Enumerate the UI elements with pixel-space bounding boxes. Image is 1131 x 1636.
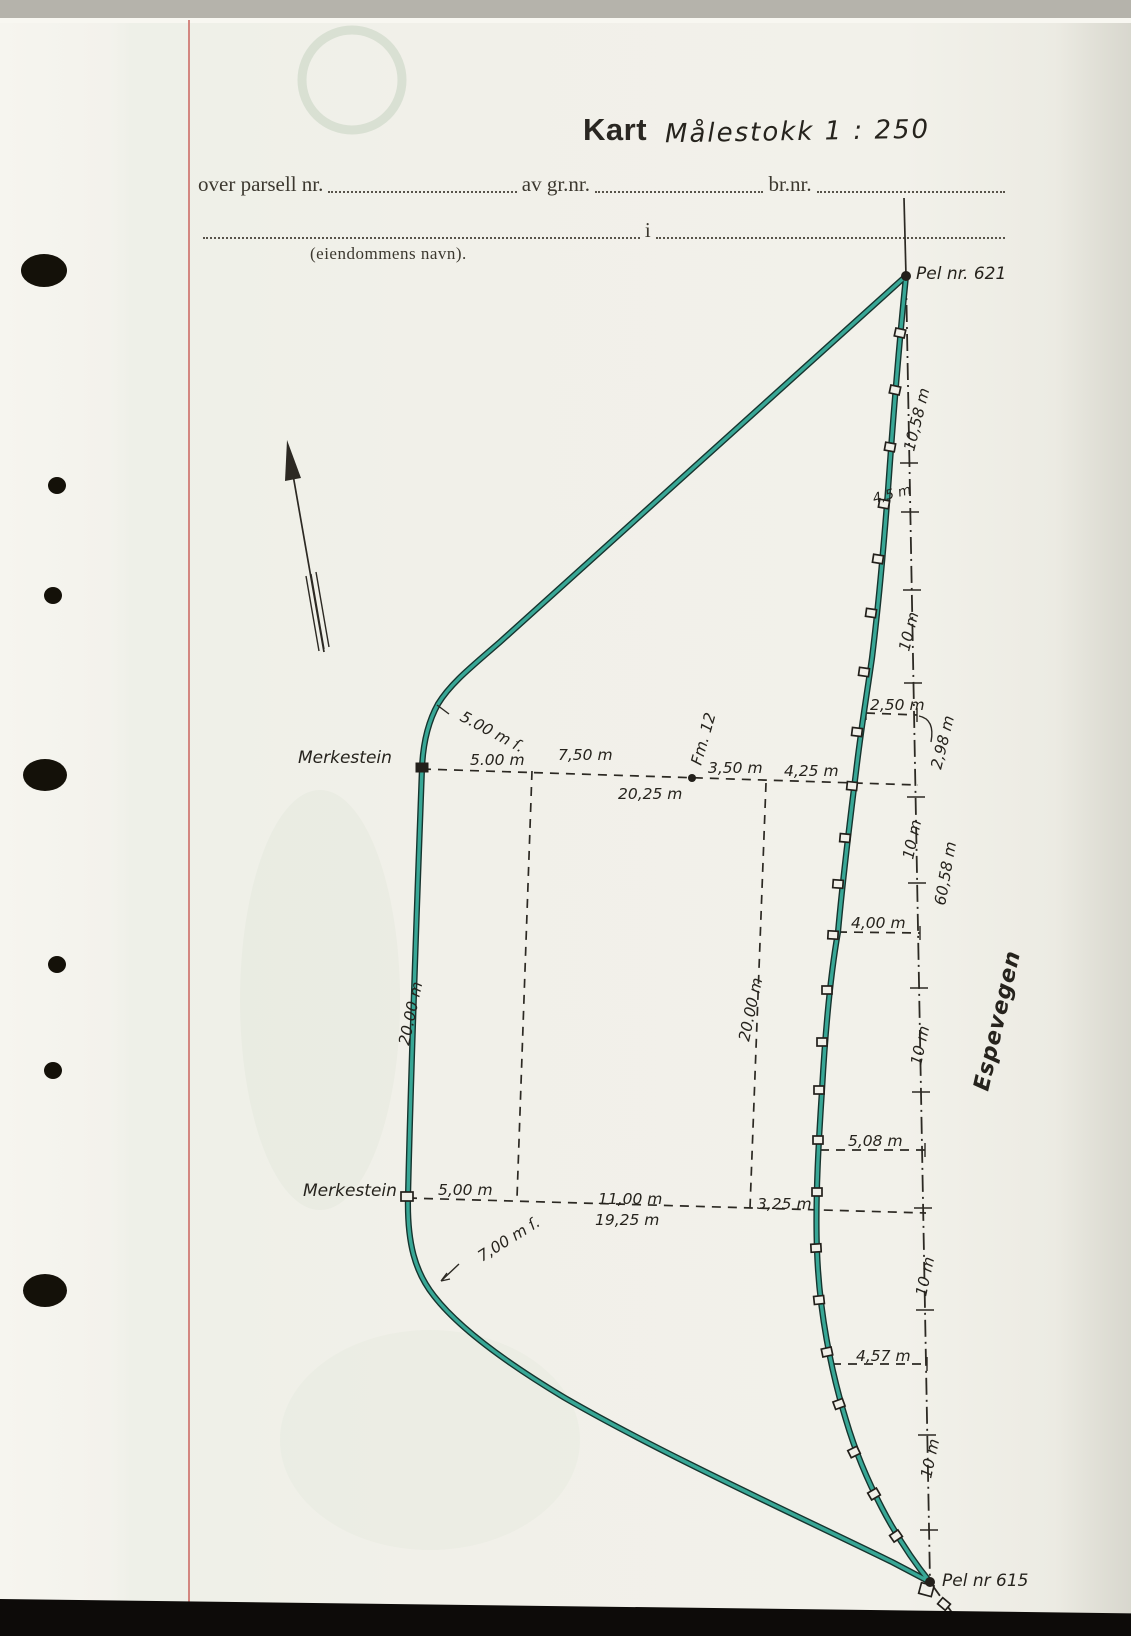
north-arrow bbox=[285, 440, 329, 652]
offset-298-leader bbox=[919, 716, 932, 742]
inner-boundary-left bbox=[517, 771, 532, 1198]
label-offset-508: 5,08 m bbox=[848, 1132, 903, 1150]
north-arrow-hatch bbox=[306, 572, 329, 651]
offset-lines bbox=[820, 713, 927, 1364]
label-depth-mid: 20.00 m bbox=[735, 976, 766, 1043]
label-road-total: 60,58 m bbox=[931, 840, 960, 907]
label-top-seg4: 4,25 m bbox=[784, 762, 839, 780]
lower-merkestein-line bbox=[408, 1198, 926, 1213]
label-bottom-seg1: 5,00 m bbox=[438, 1181, 493, 1199]
north-arrow-head bbox=[285, 440, 301, 481]
label-pel-621: Pel nr. 621 bbox=[916, 264, 1006, 284]
offset-end-ticks bbox=[820, 706, 927, 1371]
label-bottom-seg2: 11,00 m bbox=[598, 1190, 662, 1208]
ghost-ring bbox=[302, 30, 402, 130]
label-bottom-total: 19,25 m bbox=[595, 1211, 659, 1229]
label-depth-left: 20.00 m bbox=[395, 980, 426, 1047]
merkestein-mark-bottom bbox=[401, 1192, 413, 1201]
label-top-total: 20,25 m bbox=[618, 785, 682, 803]
curve-tick bbox=[437, 705, 449, 714]
label-top-seg2: 7,50 m bbox=[558, 746, 613, 764]
label-offset-457: 4,57 m bbox=[856, 1347, 911, 1365]
merkestein-mark-top bbox=[416, 763, 428, 772]
ghost-smear bbox=[240, 790, 400, 1210]
label-road-seg1: 10,58 m bbox=[900, 386, 933, 453]
label-road-seg6: 10 m bbox=[912, 1255, 938, 1298]
label-road-seg3: 10 m bbox=[895, 610, 922, 653]
label-merkestein-top: Merkestein bbox=[298, 748, 392, 768]
label-road-seg2: 4,5 m bbox=[871, 482, 913, 507]
label-merkestein-bottom: Merkestein bbox=[303, 1181, 397, 1201]
curve-pointer-arrow bbox=[441, 1264, 459, 1281]
ghost-smear bbox=[280, 1330, 580, 1550]
label-road-seg5: 10 m bbox=[907, 1024, 933, 1067]
label-top-seg3: 3,50 m bbox=[708, 759, 763, 777]
label-offset-400: 4,00 m bbox=[851, 914, 906, 932]
bleed-through-ghosts bbox=[240, 30, 580, 1550]
label-top-seg1: 5.00 m bbox=[470, 751, 525, 769]
pel-615-point bbox=[925, 1577, 935, 1587]
pel-621-point bbox=[901, 271, 911, 281]
scanned-page: Kart Målestokk 1 : 250 over parsell nr. … bbox=[0, 0, 1131, 1636]
fm-12-point bbox=[688, 774, 696, 782]
survey-map: Pel nr. 621 Pel nr 615 Espevegen Merkest… bbox=[0, 0, 1131, 1636]
label-bottom-seg3: 3,25 m bbox=[757, 1195, 812, 1213]
label-pel-615: Pel nr 615 bbox=[942, 1571, 1028, 1591]
label-road-name: Espevegen bbox=[969, 948, 1026, 1093]
label-road-seg4: 10 m bbox=[899, 818, 925, 861]
label-curve-5m: 5.00 m ſ. bbox=[457, 708, 527, 757]
label-offset-298: 2,98 m bbox=[927, 714, 958, 771]
label-offset-250: 2,50 m bbox=[870, 696, 925, 714]
upper-merkestein-line bbox=[422, 769, 918, 785]
label-road-seg7: 10 m bbox=[917, 1437, 943, 1480]
label-curve-7m: 7,00 m ſ. bbox=[475, 1213, 544, 1265]
